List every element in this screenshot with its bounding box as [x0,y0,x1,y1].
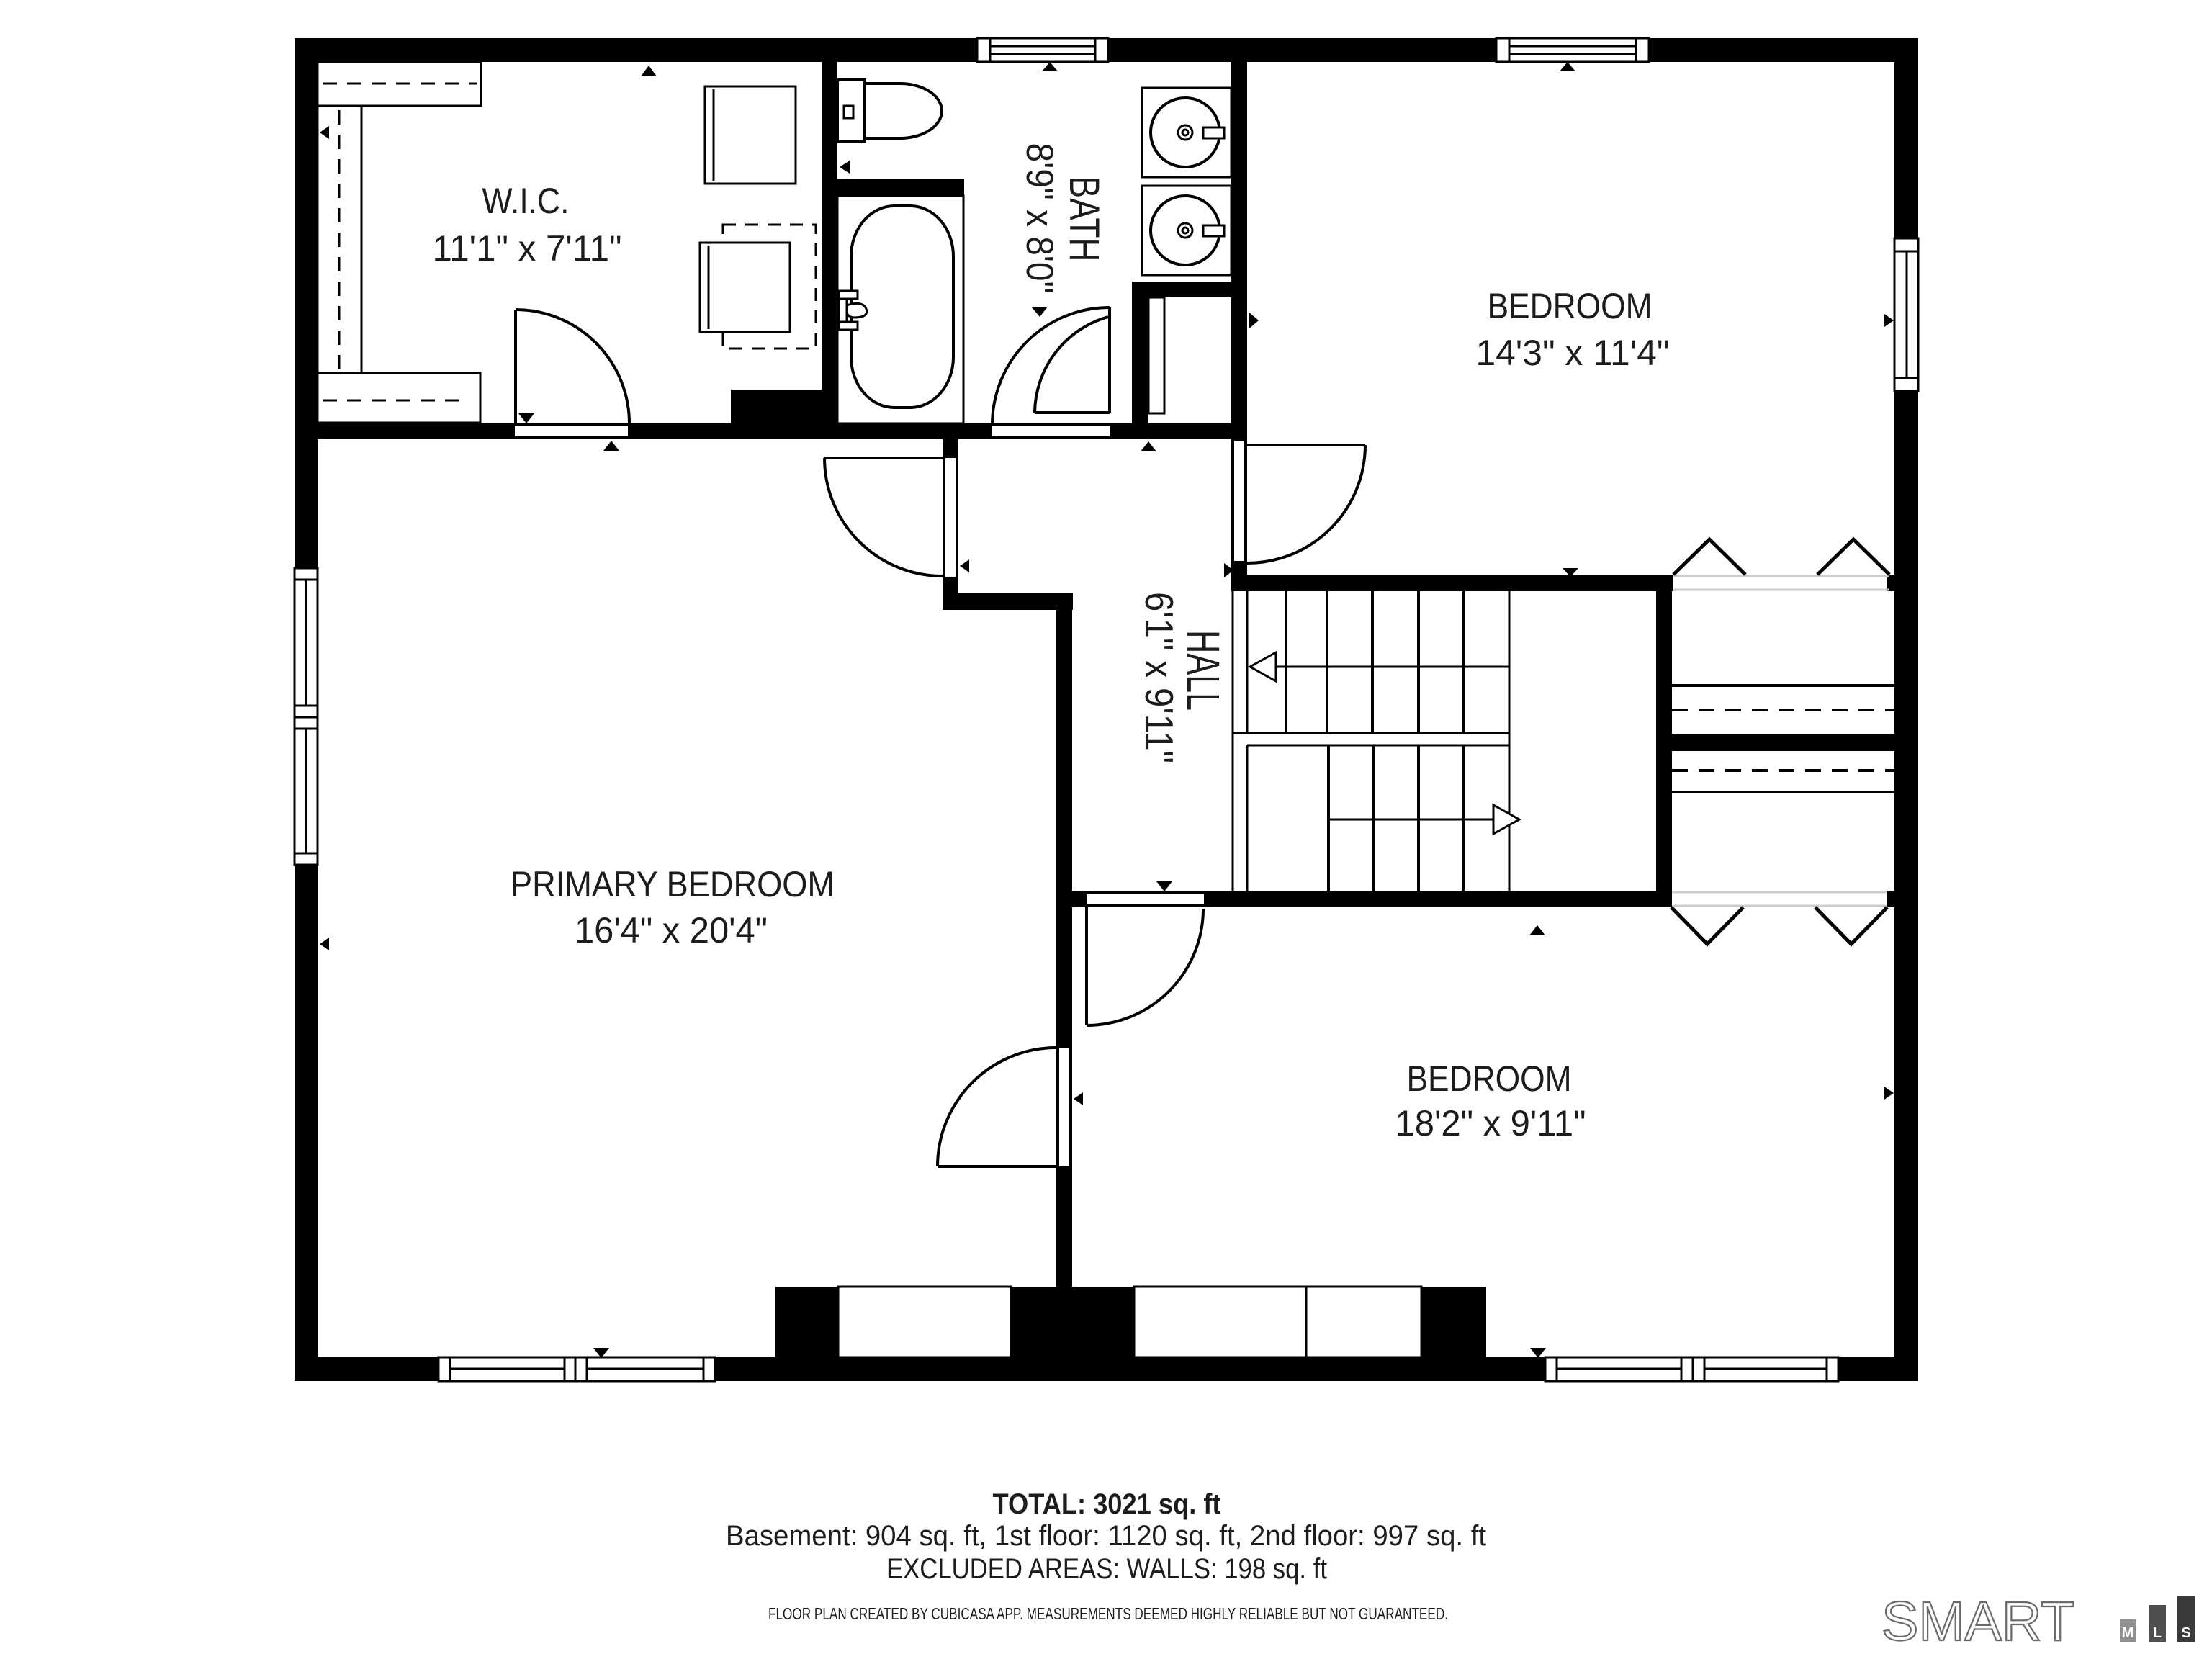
svg-text:16'4" x 20'4": 16'4" x 20'4" [575,910,768,950]
svg-text:SMART: SMART [1881,1591,2074,1653]
svg-text:BEDROOM: BEDROOM [1407,1058,1572,1099]
svg-text:HALL: HALL [1177,630,1229,711]
svg-text:14'3" x 11'4": 14'3" x 11'4" [1476,333,1670,373]
svg-text:8'9" x 8'0": 8'9" x 8'0" [1018,143,1061,294]
svg-text:TOTAL: 3021 sq. ft: TOTAL: 3021 sq. ft [993,1488,1221,1520]
svg-text:18'2" x 9'11": 18'2" x 9'11" [1395,1103,1586,1143]
svg-text:BATH: BATH [1061,176,1107,262]
svg-text:S: S [2181,1625,2190,1641]
svg-text:EXCLUDED AREAS: WALLS: 198 sq.: EXCLUDED AREAS: WALLS: 198 sq. ft [886,1553,1327,1585]
svg-text:W.I.C.: W.I.C. [482,181,570,221]
svg-text:Basement: 904 sq. ft, 1st floo: Basement: 904 sq. ft, 1st floor: 1120 sq… [726,1520,1486,1552]
svg-text:6'1" x 9'11": 6'1" x 9'11" [1137,592,1182,763]
svg-text:BEDROOM: BEDROOM [1488,286,1653,326]
svg-text:FLOOR PLAN CREATED BY CUBICASA: FLOOR PLAN CREATED BY CUBICASA APP. MEAS… [768,1604,1448,1623]
svg-text:L: L [2153,1625,2162,1641]
svg-text:11'1" x 7'11": 11'1" x 7'11" [433,228,622,269]
svg-text:M: M [2122,1625,2134,1641]
svg-text:PRIMARY BEDROOM: PRIMARY BEDROOM [511,864,835,904]
